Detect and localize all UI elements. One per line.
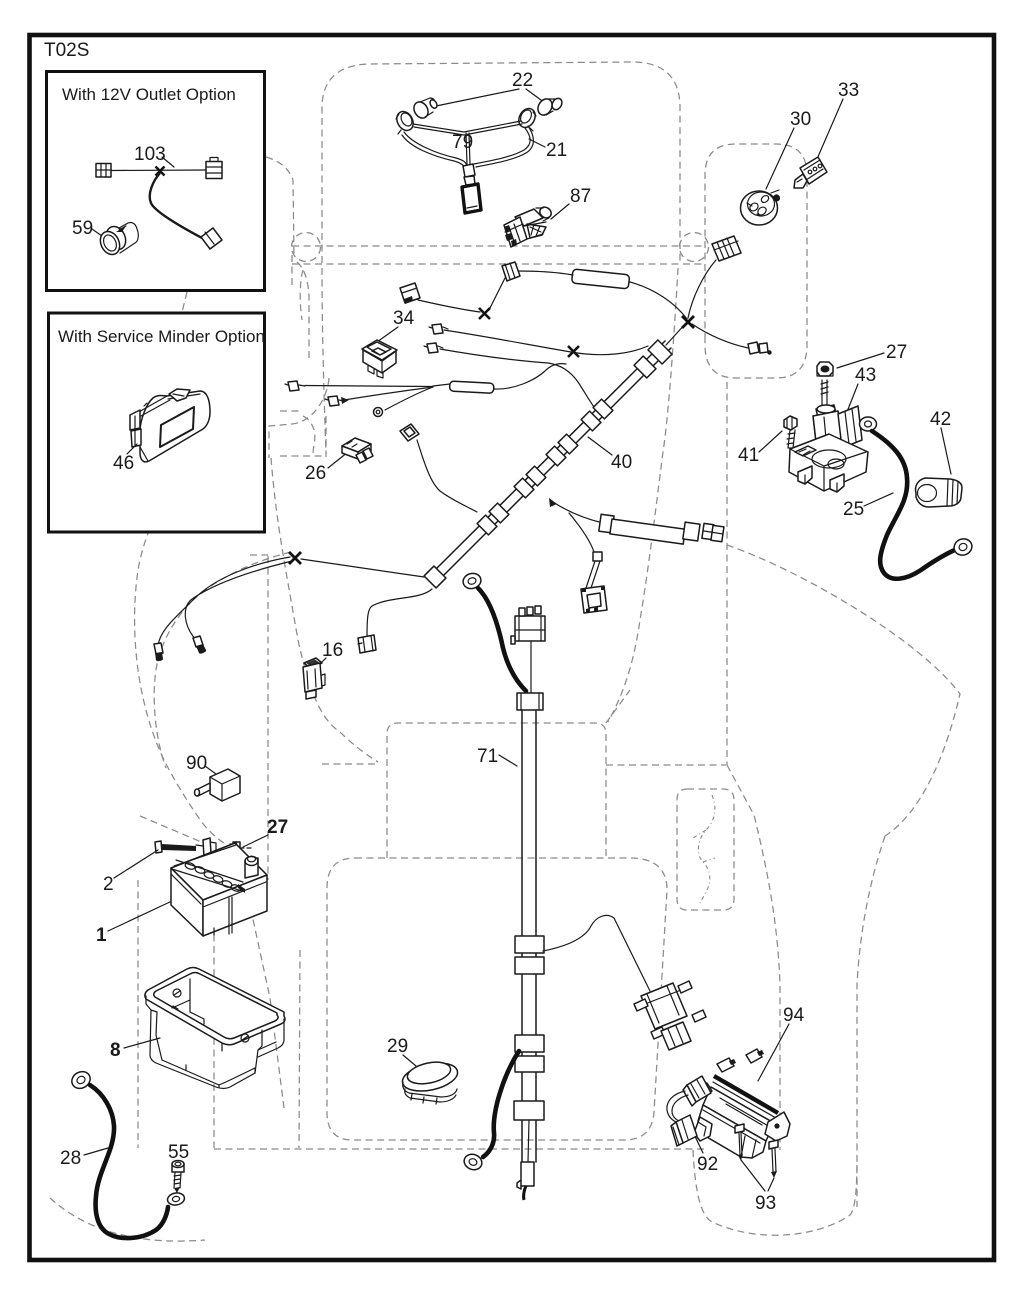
svg-text:29: 29 — [387, 1036, 408, 1057]
svg-text:With Service Minder Option: With Service Minder Option — [58, 327, 265, 346]
svg-text:43: 43 — [855, 365, 876, 386]
svg-text:With 12V Outlet Option: With 12V Outlet Option — [62, 85, 236, 104]
svg-text:40: 40 — [611, 452, 632, 473]
svg-text:46: 46 — [113, 453, 134, 474]
svg-text:33: 33 — [838, 80, 859, 101]
svg-text:93: 93 — [755, 1193, 776, 1214]
svg-text:27: 27 — [886, 342, 907, 363]
svg-text:T02S: T02S — [44, 40, 89, 61]
svg-text:94: 94 — [783, 1005, 805, 1026]
svg-text:87: 87 — [570, 186, 591, 207]
svg-text:22: 22 — [512, 70, 533, 91]
svg-text:25: 25 — [843, 499, 864, 520]
svg-text:41: 41 — [738, 445, 759, 466]
svg-text:27: 27 — [267, 817, 288, 838]
svg-text:2: 2 — [103, 874, 114, 895]
svg-text:8: 8 — [110, 1040, 121, 1061]
svg-text:103: 103 — [134, 144, 166, 165]
svg-text:42: 42 — [930, 409, 951, 430]
svg-text:30: 30 — [790, 109, 811, 130]
svg-text:21: 21 — [546, 140, 567, 161]
svg-text:71: 71 — [477, 746, 498, 767]
svg-text:92: 92 — [697, 1154, 718, 1175]
svg-text:59: 59 — [72, 218, 93, 239]
svg-text:1: 1 — [96, 925, 107, 946]
svg-text:26: 26 — [305, 463, 326, 484]
svg-text:28: 28 — [60, 1148, 81, 1169]
svg-text:16: 16 — [322, 640, 343, 661]
svg-text:34: 34 — [393, 308, 415, 329]
svg-text:79: 79 — [452, 132, 473, 153]
svg-text:90: 90 — [186, 753, 207, 774]
